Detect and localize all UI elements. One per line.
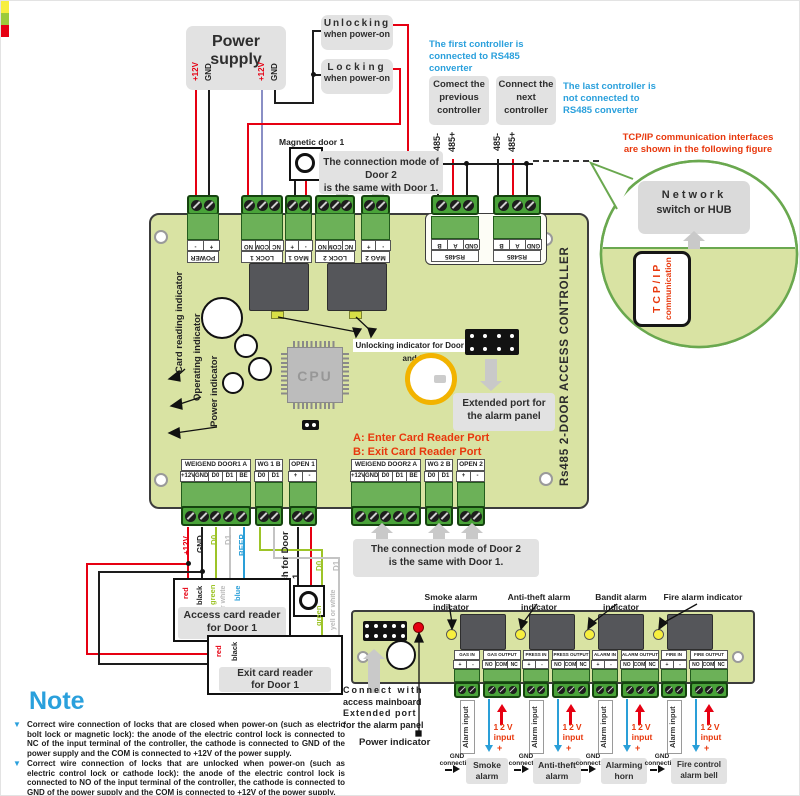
- pin-label: D0: [378, 471, 393, 482]
- v12-plus: +: [704, 743, 709, 753]
- jumper: [302, 420, 319, 430]
- pin-label: NC: [507, 660, 521, 669]
- terminal-body: [457, 482, 485, 507]
- screw-icon: [393, 511, 404, 522]
- screw-icon: [236, 511, 247, 522]
- wire-signal-label: BEEP: [238, 529, 249, 561]
- screw-icon: [578, 686, 586, 694]
- terminal-name: WG 1 B: [255, 459, 283, 471]
- terminal-screws: [592, 682, 618, 698]
- operating-led: [1, 13, 9, 25]
- terminal-pins: GNDAB: [493, 239, 541, 250]
- group-label-line1: Fire control: [671, 760, 727, 771]
- pin-label: NO: [241, 240, 256, 251]
- terminal-screws: [454, 682, 480, 698]
- wire-signal-label: D0: [315, 557, 326, 575]
- screw-icon: [292, 511, 303, 522]
- alarm-input-tag: Alarm input: [529, 700, 544, 754]
- board-title: Rs485 2-DOOR ACCESS CONTROLLER: [559, 227, 579, 505]
- screw-icon: [191, 200, 202, 211]
- terminal-mag1: -+ MAG 1: [285, 213, 312, 263]
- power-pin-label: +12V: [257, 57, 268, 87]
- smoke-alarm-indicator-label: Smoke alarm indicator: [409, 592, 493, 612]
- screw-icon: [185, 511, 196, 522]
- terminal-screws: [690, 682, 728, 698]
- gnd-arrow-icon: [445, 769, 452, 771]
- extended-port-line2: the alarm panel: [453, 410, 555, 423]
- terminal-rs485-2: GNDAB RS485: [493, 216, 541, 262]
- screw-hole: [154, 230, 168, 244]
- group-label-line1: Smoke: [466, 760, 508, 771]
- terminal-body: [592, 669, 618, 682]
- pin-label: -: [376, 240, 392, 251]
- terminal-pins: NOCOMNC: [552, 660, 590, 669]
- pin-label: D0: [424, 471, 439, 482]
- wire-black: [208, 90, 210, 197]
- terminal-name: FIRE IN: [661, 650, 687, 660]
- pin-label: +12V: [180, 471, 195, 482]
- pin-label: +: [453, 660, 467, 669]
- pin-label: NC: [342, 240, 356, 251]
- locking-line2: when power-on: [321, 73, 393, 83]
- capacitor-icon: [222, 372, 244, 394]
- screw-icon: [436, 200, 447, 211]
- junction-dot: [200, 569, 205, 574]
- screw-icon: [468, 686, 476, 694]
- group-label-line2: alarm: [466, 771, 508, 782]
- terminal-body: [431, 216, 479, 239]
- screw-icon: [406, 511, 417, 522]
- terminal-pins: GNDAB: [431, 239, 479, 250]
- exit-reader-line2: for Door 1: [219, 680, 331, 692]
- pin-label: -: [466, 660, 480, 669]
- extended-port-line1: Extended port for: [453, 397, 555, 410]
- terminal-name: PRESS IN: [523, 650, 549, 660]
- anti-theft-alarm-indicator-label: Anti-theft alarm indicator: [497, 592, 581, 612]
- gnd-arrow-icon: [522, 765, 533, 773]
- terminal-pins: +-: [187, 240, 219, 251]
- terminal-pins: -+: [361, 240, 390, 251]
- terminal-weigend-door1: WEIGEND DOOR1 A +12VGNDD0D1BE: [181, 459, 251, 507]
- screw-icon: [557, 686, 565, 694]
- screw-icon: [606, 686, 614, 694]
- power-supply-box: Power supply +12V GND +12V GND: [186, 26, 286, 90]
- wire-color-label: black: [230, 637, 241, 665]
- v12-line2: input: [627, 733, 657, 743]
- v12-line2: input: [489, 733, 519, 743]
- door2-note-line2: is the same with Door 1.: [353, 556, 539, 569]
- group-label-line2: horn: [601, 771, 647, 782]
- pin-label: COM: [564, 660, 578, 669]
- terminal-body: [454, 669, 480, 682]
- screw-icon: [210, 511, 221, 522]
- screw-icon: [299, 200, 310, 211]
- wire-violet: [261, 90, 263, 197]
- pin-label: NC: [269, 240, 284, 251]
- screw-icon: [567, 686, 575, 694]
- reader-port-b: B: Exit Card Reader Port: [353, 445, 489, 459]
- screw-icon: [636, 686, 644, 694]
- alarm-input-tag: Alarm input: [460, 700, 475, 754]
- terminal-lock1: NCCOMNO LOCK 1: [241, 213, 283, 263]
- alarm-led: [515, 629, 526, 640]
- relay: [460, 614, 506, 650]
- down-arrow-icon: [480, 359, 502, 391]
- cpu-chip: CPU: [287, 347, 343, 403]
- terminal-pins: NOCOMNC: [690, 660, 728, 669]
- reader-port-note: A: Enter Card Reader Port B: Exit Card R…: [353, 431, 489, 459]
- terminal-body: [361, 213, 390, 240]
- buzzer-icon: [201, 297, 243, 339]
- alarm-group-label: Fire control alarm bell: [671, 758, 727, 784]
- alarm-led: [584, 629, 595, 640]
- terminal-open1: OPEN 1 +-: [289, 459, 317, 507]
- gnd-arrow-icon: [650, 769, 657, 771]
- pin-label: +: [660, 660, 674, 669]
- alarm-led: [653, 629, 664, 640]
- screw-icon: [716, 686, 724, 694]
- wire-black: [312, 31, 314, 104]
- tcpip-note: TCP/IP communication interfaces are show…: [601, 132, 795, 156]
- operating-indicator-label: Operating indicator: [192, 313, 205, 401]
- wire-red: [195, 90, 197, 197]
- door2-note-line1: The connection mode of Door 2: [353, 543, 539, 556]
- pin-label: GND: [463, 239, 480, 250]
- alarm-in-terminal: PRESS IN +-: [523, 650, 549, 682]
- terminal-pins: D0D1: [255, 471, 283, 482]
- alarm-in-terminal: ALARM IN +-: [592, 650, 618, 682]
- terminal-name: MAG 2: [361, 251, 390, 263]
- v12-note: 12V input: [558, 723, 588, 742]
- extended-port-note: Extended port for the alarm panel: [453, 393, 555, 431]
- terminal-screws-lock2: [315, 195, 355, 215]
- terminal-body: [285, 213, 312, 240]
- terminal-pins: NOCOMNC: [483, 660, 521, 669]
- screw-icon: [512, 200, 523, 211]
- wire-black: [98, 571, 203, 573]
- screw-icon: [376, 200, 387, 211]
- screw-icon: [303, 511, 314, 522]
- note-bullet-marker: ▼: [13, 720, 21, 729]
- wire-color-label: red: [214, 639, 225, 663]
- prev-controller-box: Comect the previous controller: [429, 76, 489, 125]
- terminal-pins: +12VGNDD0D1BE: [181, 471, 251, 482]
- screw-icon: [269, 200, 280, 211]
- wire-color-label: black: [195, 581, 206, 609]
- unlock-led-door1: [271, 311, 284, 319]
- wire-red: [86, 563, 189, 565]
- last-controller-note: The last controller is not connected to …: [563, 81, 663, 117]
- alarm-group-label: Smoke alarm: [466, 758, 508, 784]
- wire-signal-label: D1: [332, 557, 343, 575]
- pin-label: COM: [495, 660, 509, 669]
- terminal-pins: +-: [661, 660, 687, 669]
- junction-dot: [524, 161, 529, 166]
- pin-label: +: [361, 240, 377, 251]
- pin-label: A: [447, 239, 464, 250]
- wire-red: [86, 563, 88, 655]
- terminal-screws: [621, 682, 659, 698]
- alarm-led: [446, 629, 457, 640]
- terminal-name: PRESS OUTPUT: [552, 650, 590, 660]
- gnd-arrow-icon: [453, 765, 464, 773]
- screw-hole: [732, 651, 744, 663]
- screw-icon: [705, 686, 713, 694]
- power-pin-label: +12V: [191, 57, 202, 87]
- pin-label: NO: [482, 660, 496, 669]
- power-indicator-label: Power indicator: [209, 353, 222, 429]
- screw-icon: [318, 200, 329, 211]
- wire-color-label: blue: [233, 581, 244, 605]
- pin-label: D1: [438, 471, 453, 482]
- pin-label: +: [288, 471, 303, 482]
- screw-icon: [596, 686, 604, 694]
- terminal-rs485-1: GNDAB RS485: [431, 216, 479, 262]
- tcpip-line2: communication: [663, 256, 673, 322]
- bandit-alarm-indicator-label: Bandit alarm indicator: [581, 592, 661, 612]
- terminal-pins: +12VGNDD0D1BE: [351, 471, 421, 482]
- screw-icon: [675, 686, 683, 694]
- power-pin-label: GND: [204, 57, 215, 87]
- wire-red: [399, 68, 401, 125]
- screw-icon: [257, 200, 268, 211]
- terminal-body: [621, 669, 659, 682]
- wire-red: [247, 123, 249, 197]
- relay: [598, 614, 644, 650]
- pin-label: +: [456, 471, 471, 482]
- terminal-body: [255, 482, 283, 507]
- alarm-buzzer-icon: [386, 640, 416, 670]
- network-switch-box: Network switch or HUB: [638, 181, 750, 234]
- terminal-body: [483, 669, 521, 682]
- locking-box: Locking when power-on: [321, 59, 393, 94]
- wiring-diagram: Power supply +12V GND +12V GND Unlocking…: [0, 0, 800, 796]
- terminal-screws: [483, 682, 521, 698]
- wire-color-label: green: [314, 599, 325, 633]
- screw-icon: [198, 511, 209, 522]
- wire-red: [86, 653, 225, 655]
- v12-plus: +: [497, 743, 502, 753]
- screw-icon: [355, 511, 366, 522]
- pin-label: GND: [364, 471, 379, 482]
- screw-icon: [368, 511, 379, 522]
- wire-red: [407, 24, 409, 153]
- tcpip-line1: T C P / I P: [651, 256, 663, 322]
- terminal-screws: [181, 506, 251, 526]
- next-controller-box: Connect the next controller: [496, 76, 556, 125]
- screw-icon: [527, 686, 535, 694]
- door2-note-line2: is the same with Door 1.: [319, 182, 443, 195]
- screw-icon: [647, 686, 655, 694]
- wire-signal-label: +12V: [182, 529, 193, 563]
- v12-note: 12V input: [489, 723, 519, 742]
- wire-white: [273, 527, 275, 559]
- pin-label: A: [509, 239, 526, 250]
- wire-signal-label: D0: [210, 529, 221, 551]
- terminal-name: WEIGEND DOOR1 A: [181, 459, 251, 471]
- screw-icon: [525, 200, 536, 211]
- pin-label: -: [673, 660, 687, 669]
- terminal-pins: +-: [523, 660, 549, 669]
- capacitor-icon: [234, 334, 258, 358]
- relay: [529, 614, 575, 650]
- terminal-weigend-door2: WEIGEND DOOR2 A +12VGNDD0D1BE: [351, 459, 421, 507]
- connect-note-line3: Extended port: [343, 708, 441, 720]
- exit-reader-label: Exit card reader for Door 1: [219, 667, 331, 692]
- pin-label: COM: [702, 660, 716, 669]
- locking-line1: Locking: [321, 62, 393, 73]
- screw-icon: [439, 511, 450, 522]
- access-reader-line2: for Door 1: [178, 622, 286, 635]
- card-reading-indicator-label: Card reading indicator: [174, 271, 187, 373]
- screw-icon: [428, 511, 439, 522]
- pin-label: GND: [194, 471, 209, 482]
- terminal-name: MAG 1: [285, 251, 312, 263]
- pin-label: B: [493, 239, 510, 250]
- terminal-screws: [552, 682, 590, 698]
- screw-icon: [364, 200, 375, 211]
- wire-color-label: red: [181, 581, 192, 605]
- terminal-screws: [255, 506, 283, 526]
- terminal-name: FIRE OUTPUT: [690, 650, 728, 660]
- terminal-name: GAS IN: [454, 650, 480, 660]
- wire-signal-label: GND: [196, 529, 207, 559]
- terminal-pins: +-: [289, 471, 317, 482]
- alarm-out-terminal: PRESS OUTPUT NOCOMNC: [552, 650, 590, 682]
- terminal-name: LOCK 1: [241, 251, 283, 263]
- wire-black: [98, 571, 100, 665]
- v12-line2: input: [558, 733, 588, 743]
- connect-note-line2: access mainboard: [343, 697, 441, 709]
- terminal-pins: D0D1: [425, 471, 453, 482]
- screw-icon: [665, 686, 673, 694]
- reader-port-a: A: Enter Card Reader Port: [353, 431, 489, 445]
- pin-label: -: [187, 240, 204, 251]
- pin-label: GND: [525, 239, 542, 250]
- gnd-arrow-icon: [589, 765, 600, 773]
- screw-icon: [695, 686, 703, 694]
- screw-icon: [330, 200, 341, 211]
- screw-icon: [223, 511, 234, 522]
- terminal-screws: [289, 506, 317, 526]
- gnd-arrow-icon: [514, 769, 521, 771]
- screw-icon: [458, 686, 466, 694]
- pin-label: NC: [576, 660, 590, 669]
- door2-note-bottom: The connection mode of Door 2 is the sam…: [353, 539, 539, 577]
- terminal-wg1b: WG 1 B D0D1: [255, 459, 283, 507]
- note-title: Note: [29, 687, 85, 716]
- pin-label: D0: [208, 471, 223, 482]
- pin-label: D1: [392, 471, 407, 482]
- wire-signal-label: D1: [224, 529, 235, 551]
- power-led: [1, 25, 9, 37]
- pin-label: NO: [620, 660, 634, 669]
- pin-label: -: [299, 240, 314, 251]
- pin-label: -: [302, 471, 317, 482]
- door-sensor-circle-icon: [295, 153, 315, 173]
- alarm-out-terminal: ALARM OUTPUT NOCOMNC: [621, 650, 659, 682]
- rs485-plus-label: 485+: [507, 123, 519, 161]
- terminal-name: WEIGEND DOOR2 A: [351, 459, 421, 471]
- alarm-input-tag: Alarm input: [598, 700, 613, 754]
- terminal-pins: NOCOMNC: [621, 660, 659, 669]
- pin-label: NO: [689, 660, 703, 669]
- pin-label: +12V: [350, 471, 365, 482]
- terminal-body: [241, 213, 283, 240]
- rs485-plus-label: 485+: [447, 123, 459, 161]
- alarm-in-terminal: GAS IN +-: [454, 650, 480, 682]
- relay: [249, 263, 309, 311]
- terminal-name: OPEN 2: [457, 459, 485, 471]
- door2-note-line1: The connection mode of Door 2: [319, 156, 443, 182]
- screw-icon: [380, 511, 391, 522]
- screw-hole: [539, 472, 553, 486]
- v12-note: 12V input: [627, 723, 657, 742]
- screw-icon: [471, 511, 482, 522]
- pin-label: B: [431, 239, 448, 250]
- terminal-pins: NCCOMNO: [315, 240, 355, 251]
- pin-label: +: [522, 660, 536, 669]
- screw-icon: [460, 511, 471, 522]
- terminal-body: [523, 669, 549, 682]
- terminal-body: [493, 216, 541, 239]
- pin-label: -: [604, 660, 618, 669]
- v12-line2: input: [696, 733, 726, 743]
- screw-icon: [269, 511, 280, 522]
- note-bullet-marker: ▼: [13, 759, 21, 768]
- fire-alarm-indicator-label: Fire alarm indicator: [663, 592, 743, 602]
- alarm-power-led: [413, 622, 424, 633]
- extended-port-header: [465, 329, 519, 355]
- tcpip-port-text: T C P / I P communication: [651, 256, 673, 322]
- alarm-in-terminal: FIRE IN +-: [661, 650, 687, 682]
- pin-label: -: [470, 471, 485, 482]
- unlock-indicator-note: Unlocking indicator for Door 1 and 2: [353, 339, 473, 352]
- pin-label: COM: [633, 660, 647, 669]
- pin-label: +: [285, 240, 300, 251]
- pin-label: D1: [268, 471, 283, 482]
- capacitor-icon: [248, 357, 272, 381]
- terminal-wg2b: WG 2 B D0D1: [425, 459, 453, 507]
- wire-green: [259, 527, 261, 551]
- pin-label: -: [535, 660, 549, 669]
- group-label-line2: alarm bell: [671, 771, 727, 782]
- battery-icon: [405, 353, 457, 405]
- pin-label: BE: [236, 471, 251, 482]
- unlocking-line1: Unlocking: [321, 18, 393, 29]
- pin-label: D0: [254, 471, 269, 482]
- note-bullet-1: Correct wire connection of locks that ar…: [27, 720, 345, 758]
- terminal-body: [187, 213, 219, 240]
- screw-icon: [204, 200, 215, 211]
- screw-icon: [244, 200, 255, 211]
- screw-icon: [498, 686, 506, 694]
- pin-label: BE: [406, 471, 421, 482]
- screw-icon: [498, 200, 509, 211]
- pin-label: COM: [255, 240, 270, 251]
- card-reading-led: [1, 1, 9, 13]
- magnetic-door-label: Magnetic door 1: [279, 137, 344, 147]
- v12-plus: +: [635, 743, 640, 753]
- screw-icon: [258, 511, 269, 522]
- unlocking-line2: when power-on: [321, 29, 393, 39]
- terminal-name: ALARM IN: [592, 650, 618, 660]
- pin-label: D1: [222, 471, 237, 482]
- terminal-pins: +-: [592, 660, 618, 669]
- screw-icon: [626, 686, 634, 694]
- wire-color-label: yell or white: [330, 587, 341, 633]
- terminal-body: [552, 669, 590, 682]
